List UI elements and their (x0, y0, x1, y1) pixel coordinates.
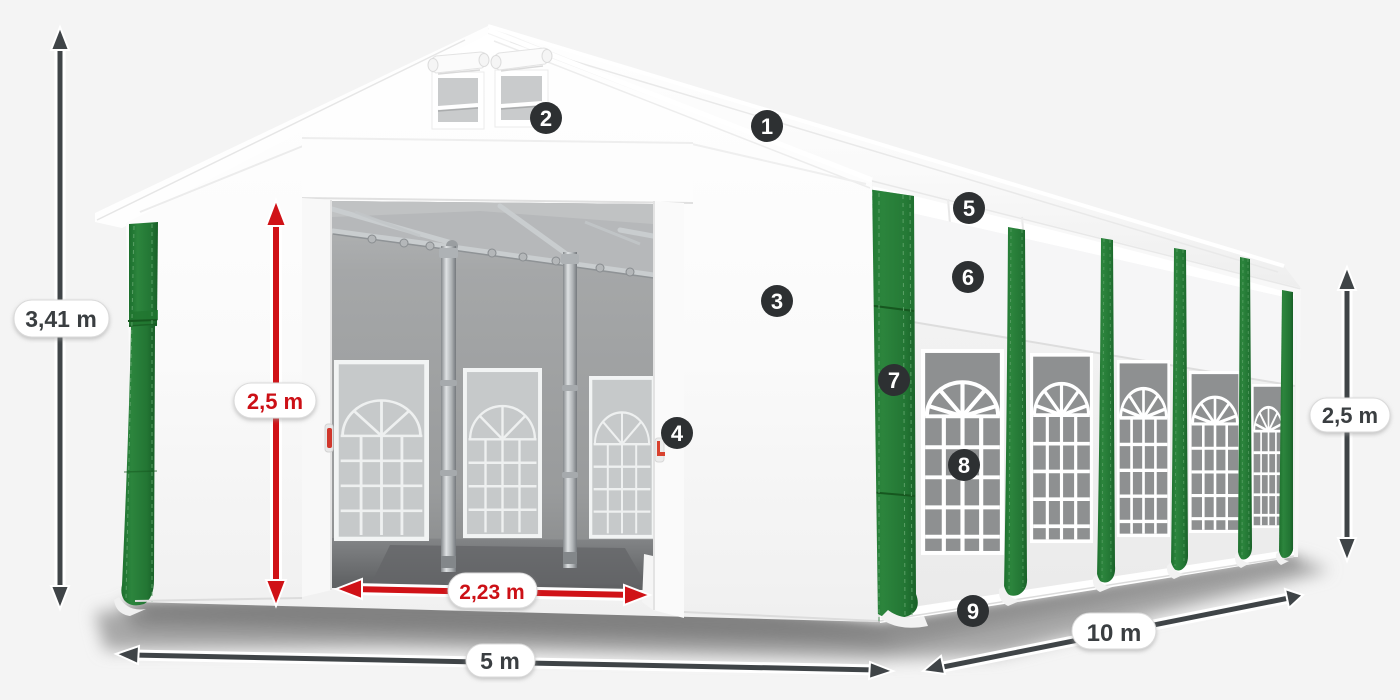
svg-text:1: 1 (761, 114, 773, 139)
svg-text:5 m: 5 m (480, 648, 520, 674)
svg-text:3,41 m: 3,41 m (25, 306, 97, 332)
svg-text:9: 9 (967, 599, 979, 624)
svg-text:8: 8 (958, 453, 970, 478)
svg-text:7: 7 (888, 368, 900, 393)
svg-text:2,5 m: 2,5 m (1322, 403, 1378, 428)
svg-text:3: 3 (771, 289, 783, 314)
svg-text:4: 4 (671, 421, 684, 446)
svg-text:5: 5 (963, 196, 975, 221)
svg-text:2,5 m: 2,5 m (247, 389, 303, 414)
svg-text:6: 6 (962, 265, 974, 290)
svg-text:2,23 m: 2,23 m (459, 581, 524, 604)
svg-text:2: 2 (540, 106, 552, 131)
svg-text:10 m: 10 m (1087, 620, 1142, 647)
